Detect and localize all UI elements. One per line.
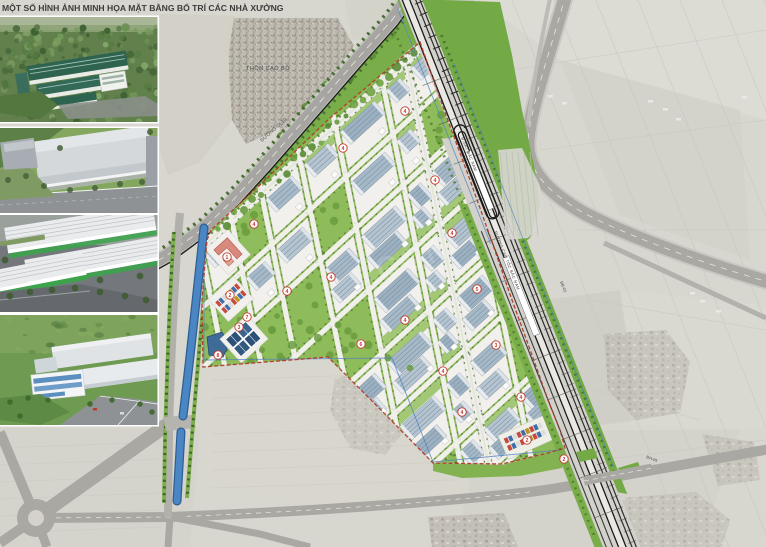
svg-text:1: 1 [226,255,229,261]
svg-text:4: 4 [520,395,523,401]
svg-text:MỘT SỐ HÌNH ẢNH MINH HỌA MẶT B: MỘT SỐ HÌNH ẢNH MINH HỌA MẶT BẰNG BỐ TRÍ… [2,2,284,13]
svg-text:4: 4 [342,146,345,152]
svg-text:3: 3 [238,325,241,331]
svg-text:2: 2 [229,293,232,299]
svg-text:4: 4 [442,369,445,375]
svg-text:8: 8 [217,353,220,359]
svg-text:4: 4 [461,410,464,416]
svg-text:4: 4 [404,318,407,324]
svg-text:4: 4 [434,178,437,184]
svg-text:2: 2 [526,438,529,444]
svg-text:5: 5 [476,287,479,293]
svg-text:7: 7 [246,315,249,321]
svg-text:3: 3 [495,343,498,349]
svg-text:2: 2 [563,457,566,463]
svg-text:4: 4 [451,231,454,237]
svg-text:4: 4 [330,275,333,281]
svg-text:4: 4 [286,289,289,295]
svg-text:4: 4 [253,222,256,228]
svg-text:THÔN CAO BỒ: THÔN CAO BỒ [246,65,290,72]
svg-text:4: 4 [404,109,407,115]
svg-text:6: 6 [360,342,363,348]
